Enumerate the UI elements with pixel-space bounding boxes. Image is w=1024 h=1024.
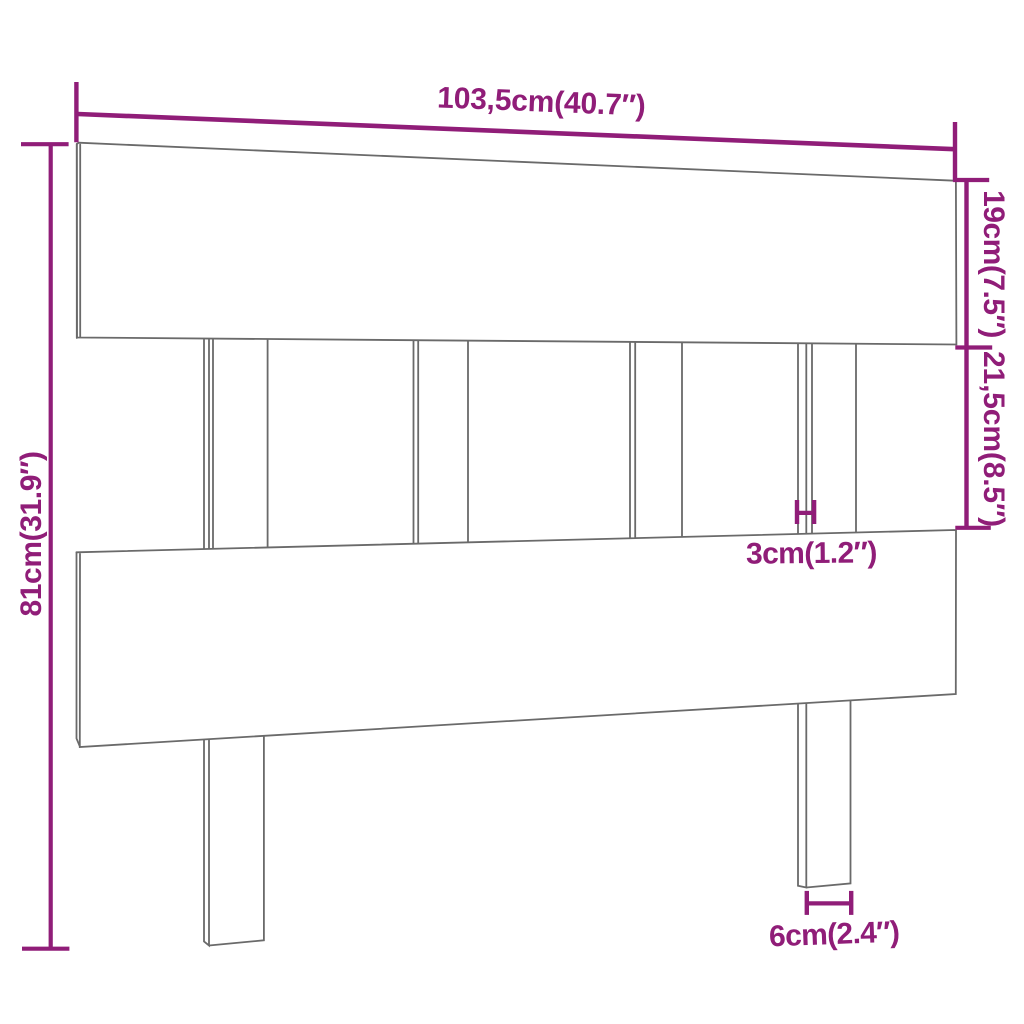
svg-text:19cm(7.5″): 19cm(7.5″) [977,190,1010,338]
svg-text:21,5cm(8.5″): 21,5cm(8.5″) [977,351,1010,527]
svg-text:81cm(31.9″): 81cm(31.9″) [15,451,48,616]
svg-text:3cm(1.2″): 3cm(1.2″) [746,536,877,570]
svg-text:6cm(2.4″): 6cm(2.4″) [768,916,899,954]
